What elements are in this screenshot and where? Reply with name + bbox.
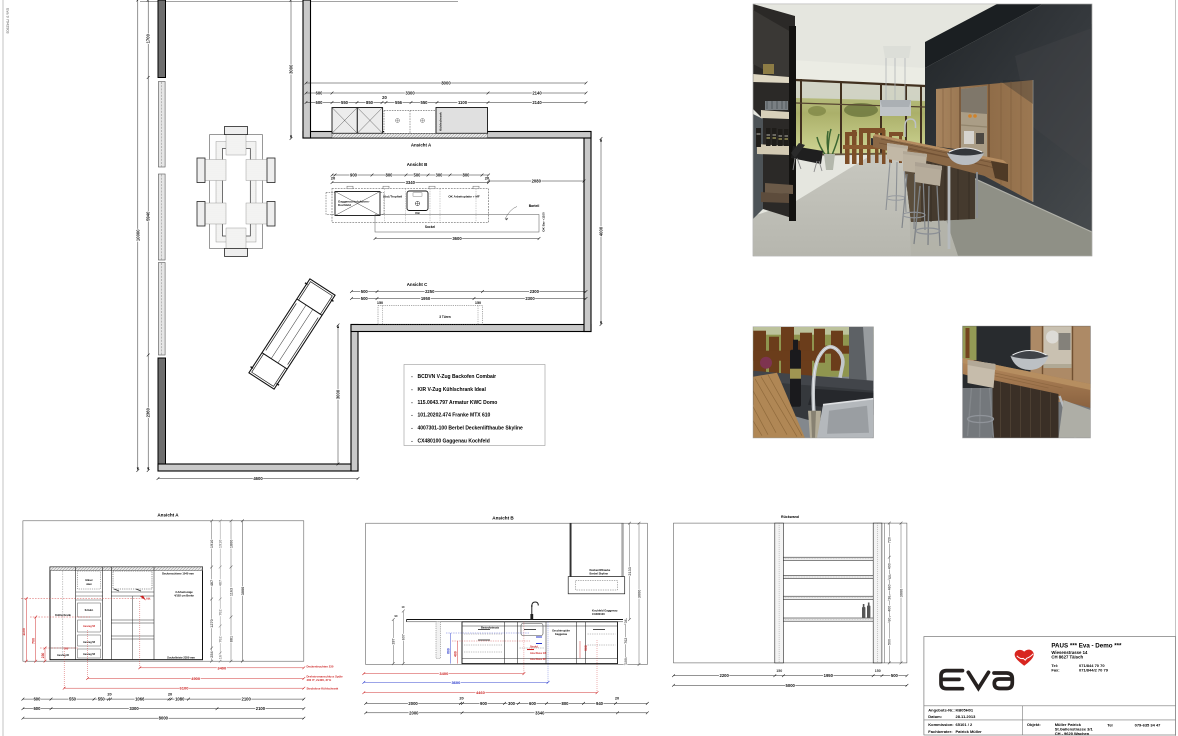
svg-text:550: 550 xyxy=(69,697,77,702)
svg-text:3600: 3600 xyxy=(452,236,462,241)
svg-text:079-635 34 47: 079-635 34 47 xyxy=(1135,723,1162,728)
svg-text:600: 600 xyxy=(529,701,537,706)
svg-text:800: 800 xyxy=(386,172,394,177)
svg-text:Ansicht B: Ansicht B xyxy=(407,162,428,167)
svg-text:PAUS *** Eva - Demo ***: PAUS *** Eva - Demo *** xyxy=(1051,642,1122,649)
svg-text:1910: 1910 xyxy=(219,540,223,548)
svg-text:600: 600 xyxy=(316,100,324,105)
svg-text:20: 20 xyxy=(382,95,387,100)
svg-text:Kochfeld Gaggenau: Kochfeld Gaggenau xyxy=(592,609,618,613)
svg-text:6100: 6100 xyxy=(180,686,190,691)
svg-text:2300: 2300 xyxy=(525,296,535,301)
svg-text:150: 150 xyxy=(776,669,782,673)
svg-text:Barteil: Barteil xyxy=(529,204,540,208)
svg-text:20: 20 xyxy=(168,691,172,696)
svg-text:230: 230 xyxy=(41,653,45,659)
svg-text:Auszug 90: Auszug 90 xyxy=(57,654,70,657)
svg-text:500: 500 xyxy=(361,289,369,294)
svg-text:300: 300 xyxy=(508,701,516,706)
svg-text:3400: 3400 xyxy=(439,671,449,676)
svg-text:1950: 1950 xyxy=(824,673,834,678)
svg-text:550: 550 xyxy=(98,697,106,702)
svg-text:Kühlschrank: Kühlschrank xyxy=(55,613,71,617)
svg-text:1270: 1270 xyxy=(210,619,214,627)
svg-text:1800: 1800 xyxy=(229,540,233,548)
svg-text:Steckd.: Steckd. xyxy=(530,646,539,649)
svg-text:10000: 10000 xyxy=(135,229,140,241)
svg-text:3400: 3400 xyxy=(217,665,227,670)
svg-text:Gläser: Gläser xyxy=(85,579,93,582)
svg-text:2300: 2300 xyxy=(530,289,540,294)
svg-text:150: 150 xyxy=(875,669,881,673)
svg-text:1163: 1163 xyxy=(229,588,233,596)
svg-text:150: 150 xyxy=(377,301,383,305)
svg-text:115.0043.797 Armatur KWC Domo: 115.0043.797 Armatur KWC Domo xyxy=(418,400,498,406)
svg-text:2360: 2360 xyxy=(146,407,151,417)
svg-text:65101 / 2: 65101 / 2 xyxy=(956,722,973,727)
svg-text:4600: 4600 xyxy=(253,476,263,481)
svg-text:Kochfeld: Kochfeld xyxy=(338,203,351,207)
svg-text:Besteckeinsatz: Besteckeinsatz xyxy=(481,627,500,630)
svg-text:101.20202.474 Franke MTX 610: 101.20202.474 Franke MTX 610 xyxy=(418,413,491,419)
svg-text:3000: 3000 xyxy=(241,587,245,595)
svg-text:400: 400 xyxy=(453,651,457,657)
svg-text:1100: 1100 xyxy=(458,100,468,105)
svg-text:5000: 5000 xyxy=(786,683,796,688)
svg-text:556: 556 xyxy=(395,100,403,105)
svg-text:28.11.2013: 28.11.2013 xyxy=(956,714,977,719)
svg-text:Auszug 58: Auszug 58 xyxy=(83,653,96,656)
svg-text:Kühlschrank: Kühlschrank xyxy=(439,112,443,131)
svg-text:60: 60 xyxy=(888,575,892,579)
svg-text:3300: 3300 xyxy=(405,90,415,95)
svg-text:Auszug 58: Auszug 58 xyxy=(83,641,96,644)
svg-text:Ansicht B: Ansicht B xyxy=(492,516,514,521)
svg-text:850: 850 xyxy=(366,100,374,105)
svg-text:Patrick Müller: Patrick Müller xyxy=(956,729,983,734)
svg-text:720: 720 xyxy=(888,537,892,543)
svg-text:2140: 2140 xyxy=(532,90,542,95)
svg-text:800: 800 xyxy=(463,172,471,177)
svg-text:2250: 2250 xyxy=(425,289,435,294)
svg-text:2000: 2000 xyxy=(408,701,418,706)
svg-text:900: 900 xyxy=(480,701,488,706)
svg-text:3000: 3000 xyxy=(899,589,903,597)
svg-text:Sockelleiste 2350 mm: Sockelleiste 2350 mm xyxy=(167,656,195,660)
svg-text:3600: 3600 xyxy=(451,680,461,685)
svg-text:Anschluss KF: Anschluss KF xyxy=(530,658,546,661)
svg-text:16: 16 xyxy=(219,655,223,659)
svg-text:Deckenschiene 1040 mm: Deckenschiene 1040 mm xyxy=(162,572,194,576)
svg-text:oben: oben xyxy=(86,583,92,586)
svg-text:600: 600 xyxy=(446,648,450,654)
svg-text:254: 254 xyxy=(210,651,214,658)
svg-text:Abl.: Abl. xyxy=(146,597,151,601)
svg-text:100: 100 xyxy=(624,658,628,664)
svg-text:700: 700 xyxy=(32,638,36,644)
svg-text:400 3*, 2x400, 37 E: 400 3*, 2x400, 37 E xyxy=(307,678,332,682)
svg-text:3 Türen: 3 Türen xyxy=(439,315,451,319)
svg-text:36: 36 xyxy=(624,619,628,623)
svg-text:900: 900 xyxy=(350,172,358,177)
svg-text:2080: 2080 xyxy=(532,178,542,183)
svg-text:4007301-100 Berbel Deckenlifth: 4007301-100 Berbel Deckenlifthaube Skyli… xyxy=(418,426,524,432)
svg-text:800: 800 xyxy=(562,701,570,706)
svg-text:3340: 3340 xyxy=(535,710,545,715)
svg-text:Ansicht A: Ansicht A xyxy=(157,513,179,518)
svg-text:Eva 9 7942903: Eva 9 7942903 xyxy=(6,8,10,34)
svg-text:150: 150 xyxy=(475,301,481,305)
svg-text:500: 500 xyxy=(891,673,899,678)
svg-text:071/844/2 70 79: 071/844/2 70 79 xyxy=(1079,668,1109,673)
svg-text:607: 607 xyxy=(402,634,406,640)
svg-text:20: 20 xyxy=(615,695,619,700)
svg-text:3000: 3000 xyxy=(335,389,340,399)
svg-text:KIR V-Zug Kühlschrank Ideal: KIR V-Zug Kühlschrank Ideal xyxy=(418,387,487,393)
svg-text:CH 8627 Täisch: CH 8627 Täisch xyxy=(1051,655,1083,660)
svg-text:Deckenleuchten 230: Deckenleuchten 230 xyxy=(307,665,334,669)
svg-text:2100: 2100 xyxy=(256,706,266,711)
svg-text:CX480100: CX480100 xyxy=(592,612,605,616)
svg-text:400: 400 xyxy=(888,606,892,612)
svg-text:1910: 1910 xyxy=(210,540,214,548)
svg-text:500: 500 xyxy=(361,296,369,301)
svg-text:60: 60 xyxy=(888,618,892,622)
svg-text:Sockel: Sockel xyxy=(425,225,435,229)
svg-text:500: 500 xyxy=(414,172,422,177)
svg-text:3340: 3340 xyxy=(406,180,416,185)
svg-text:1100: 1100 xyxy=(22,628,26,636)
svg-text:600: 600 xyxy=(316,90,324,95)
svg-text:Kommission:: Kommission: xyxy=(928,722,953,727)
svg-text:4460: 4460 xyxy=(476,690,486,695)
svg-text:4/102 cm Breite: 4/102 cm Breite xyxy=(174,594,194,598)
svg-text:1950: 1950 xyxy=(421,296,431,301)
svg-text:Rückwand: Rückwand xyxy=(781,515,799,519)
svg-text:4900: 4900 xyxy=(191,676,201,681)
svg-text:Datum:: Datum: xyxy=(928,714,942,719)
svg-text:Berbel Skyline: Berbel Skyline xyxy=(590,571,609,575)
svg-text:5940: 5940 xyxy=(146,211,151,221)
svg-text:300: 300 xyxy=(436,172,444,177)
svg-text:900: 900 xyxy=(584,645,588,651)
svg-text:KB05H01: KB05H01 xyxy=(956,708,974,713)
svg-text:762: 762 xyxy=(624,638,628,644)
svg-text:600: 600 xyxy=(33,697,41,702)
svg-text:Objekt:: Objekt: xyxy=(1027,722,1041,727)
svg-text:8000: 8000 xyxy=(159,716,169,721)
svg-text:300: 300 xyxy=(64,647,69,651)
svg-text:Schubl.: Schubl. xyxy=(85,609,94,612)
svg-text:OK Arbeitsplatte + MF: OK Arbeitsplatte + MF xyxy=(448,195,479,199)
svg-text:Steckdose Kühlschrank: Steckdose Kühlschrank xyxy=(307,687,339,691)
svg-text:762: 762 xyxy=(219,636,223,642)
svg-text:400: 400 xyxy=(888,563,892,569)
svg-text:CX480100 Gaggenau Kochfeld: CX480100 Gaggenau Kochfeld xyxy=(418,439,490,445)
svg-text:Deckenlifthaube: Deckenlifthaube xyxy=(590,568,611,572)
svg-text:881: 881 xyxy=(229,636,233,642)
svg-text:3000: 3000 xyxy=(288,64,293,74)
svg-text:3 Arbeitszüge: 3 Arbeitszüge xyxy=(175,590,193,594)
svg-text:3300: 3300 xyxy=(129,706,139,711)
svg-text:460: 460 xyxy=(888,584,892,590)
svg-text:20: 20 xyxy=(331,176,336,181)
svg-text:1080: 1080 xyxy=(175,697,185,702)
svg-text:8000: 8000 xyxy=(441,80,451,85)
svg-text:20: 20 xyxy=(107,691,111,696)
svg-text:2100: 2100 xyxy=(241,697,251,702)
svg-text:4000: 4000 xyxy=(598,226,603,236)
svg-text:OK Bar +1100: OK Bar +1100 xyxy=(542,212,546,232)
svg-text:36: 36 xyxy=(888,596,892,600)
svg-text:20: 20 xyxy=(485,176,490,181)
svg-text:CH - 9620 Wachen: CH - 9620 Wachen xyxy=(1055,731,1090,736)
svg-text:550: 550 xyxy=(421,100,429,105)
svg-text:940: 940 xyxy=(596,701,604,706)
svg-text:1066: 1066 xyxy=(135,697,145,702)
svg-text:Auszug 58: Auszug 58 xyxy=(83,625,96,628)
svg-text:550: 550 xyxy=(341,100,349,105)
svg-text:Tel: Tel xyxy=(1107,723,1112,728)
svg-text:2140: 2140 xyxy=(532,100,542,105)
svg-text:287: 287 xyxy=(392,639,396,645)
svg-text:BCDVN V-Zug Backofen Combair: BCDVN V-Zug Backofen Combair xyxy=(418,374,497,380)
svg-text:600: 600 xyxy=(33,706,41,711)
svg-text:Angebots-Nr.:: Angebots-Nr.: xyxy=(928,708,954,713)
svg-text:487: 487 xyxy=(219,580,223,586)
svg-text:Abd./Tropfteil: Abd./Tropfteil xyxy=(383,195,402,199)
svg-text:Anschluss GS: Anschluss GS xyxy=(530,652,547,655)
svg-text:20: 20 xyxy=(459,695,463,700)
svg-text:1700: 1700 xyxy=(146,33,151,43)
svg-text:Fachberater:: Fachberater: xyxy=(928,729,952,734)
svg-text:Gaggenau: Gaggenau xyxy=(555,633,568,636)
svg-text:Ansicht A: Ansicht A xyxy=(411,143,432,148)
svg-text:2133: 2133 xyxy=(628,567,632,575)
svg-text:Fax:: Fax: xyxy=(1051,668,1059,673)
svg-text:2000: 2000 xyxy=(409,710,419,715)
svg-text:762: 762 xyxy=(219,609,223,615)
svg-text:2200: 2200 xyxy=(719,673,729,678)
svg-text:3000: 3000 xyxy=(637,590,641,598)
svg-text:500: 500 xyxy=(888,639,892,645)
svg-text:Ansicht C: Ansicht C xyxy=(407,282,428,287)
svg-text:487: 487 xyxy=(210,580,214,586)
